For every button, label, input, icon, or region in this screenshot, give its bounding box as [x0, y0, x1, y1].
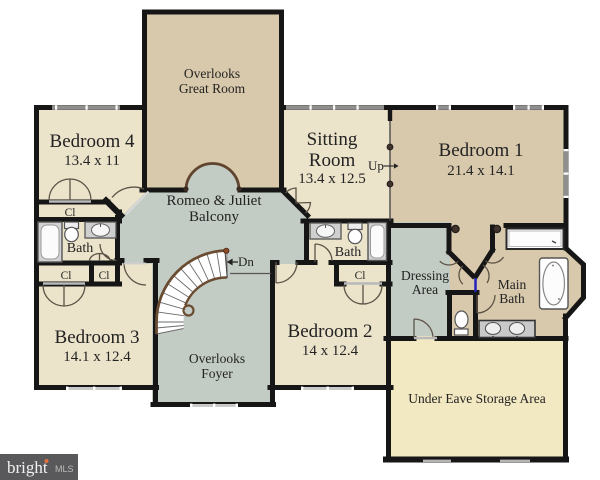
svg-text:Dressing: Dressing	[401, 268, 449, 283]
svg-text:Area: Area	[412, 282, 438, 297]
svg-text:Main: Main	[498, 277, 527, 292]
svg-text:Overlooks: Overlooks	[184, 66, 240, 81]
svg-text:Bedroom 2: Bedroom 2	[288, 321, 373, 342]
svg-text:Cl: Cl	[355, 270, 366, 282]
svg-text:Overlooks: Overlooks	[189, 351, 245, 366]
svg-text:14 x 12.4: 14 x 12.4	[302, 343, 359, 359]
svg-text:21.4 x 14.1: 21.4 x 14.1	[447, 163, 515, 179]
svg-text:Bedroom 3: Bedroom 3	[55, 327, 140, 348]
svg-text:Bath: Bath	[335, 245, 361, 260]
svg-text:Dn: Dn	[238, 254, 254, 269]
svg-text:Romeo & Juliet: Romeo & Juliet	[167, 193, 263, 209]
svg-text:Under Eave Storage Area: Under Eave Storage Area	[408, 391, 546, 406]
svg-text:Great Room: Great Room	[179, 81, 246, 96]
svg-text:MLS: MLS	[55, 464, 74, 474]
svg-text:bright: bright	[7, 458, 48, 477]
svg-text:Room: Room	[309, 150, 356, 171]
svg-text:14.1 x 12.4: 14.1 x 12.4	[63, 349, 131, 365]
svg-text:Bath: Bath	[499, 291, 525, 306]
svg-text:Balcony: Balcony	[189, 209, 239, 225]
svg-text:Bedroom 1: Bedroom 1	[439, 140, 524, 161]
svg-text:Sitting: Sitting	[307, 129, 358, 150]
svg-text:Up: Up	[368, 158, 384, 173]
svg-text:Cl: Cl	[99, 270, 110, 282]
svg-text:Cl: Cl	[61, 270, 72, 282]
svg-text:Bedroom 4: Bedroom 4	[50, 131, 135, 152]
svg-text:Foyer: Foyer	[201, 366, 233, 381]
svg-text:Bath: Bath	[67, 241, 93, 256]
svg-text:13.4 x 11: 13.4 x 11	[64, 153, 120, 169]
svg-text:13.4 x 12.5: 13.4 x 12.5	[298, 171, 366, 187]
svg-text:Cl: Cl	[65, 207, 76, 219]
